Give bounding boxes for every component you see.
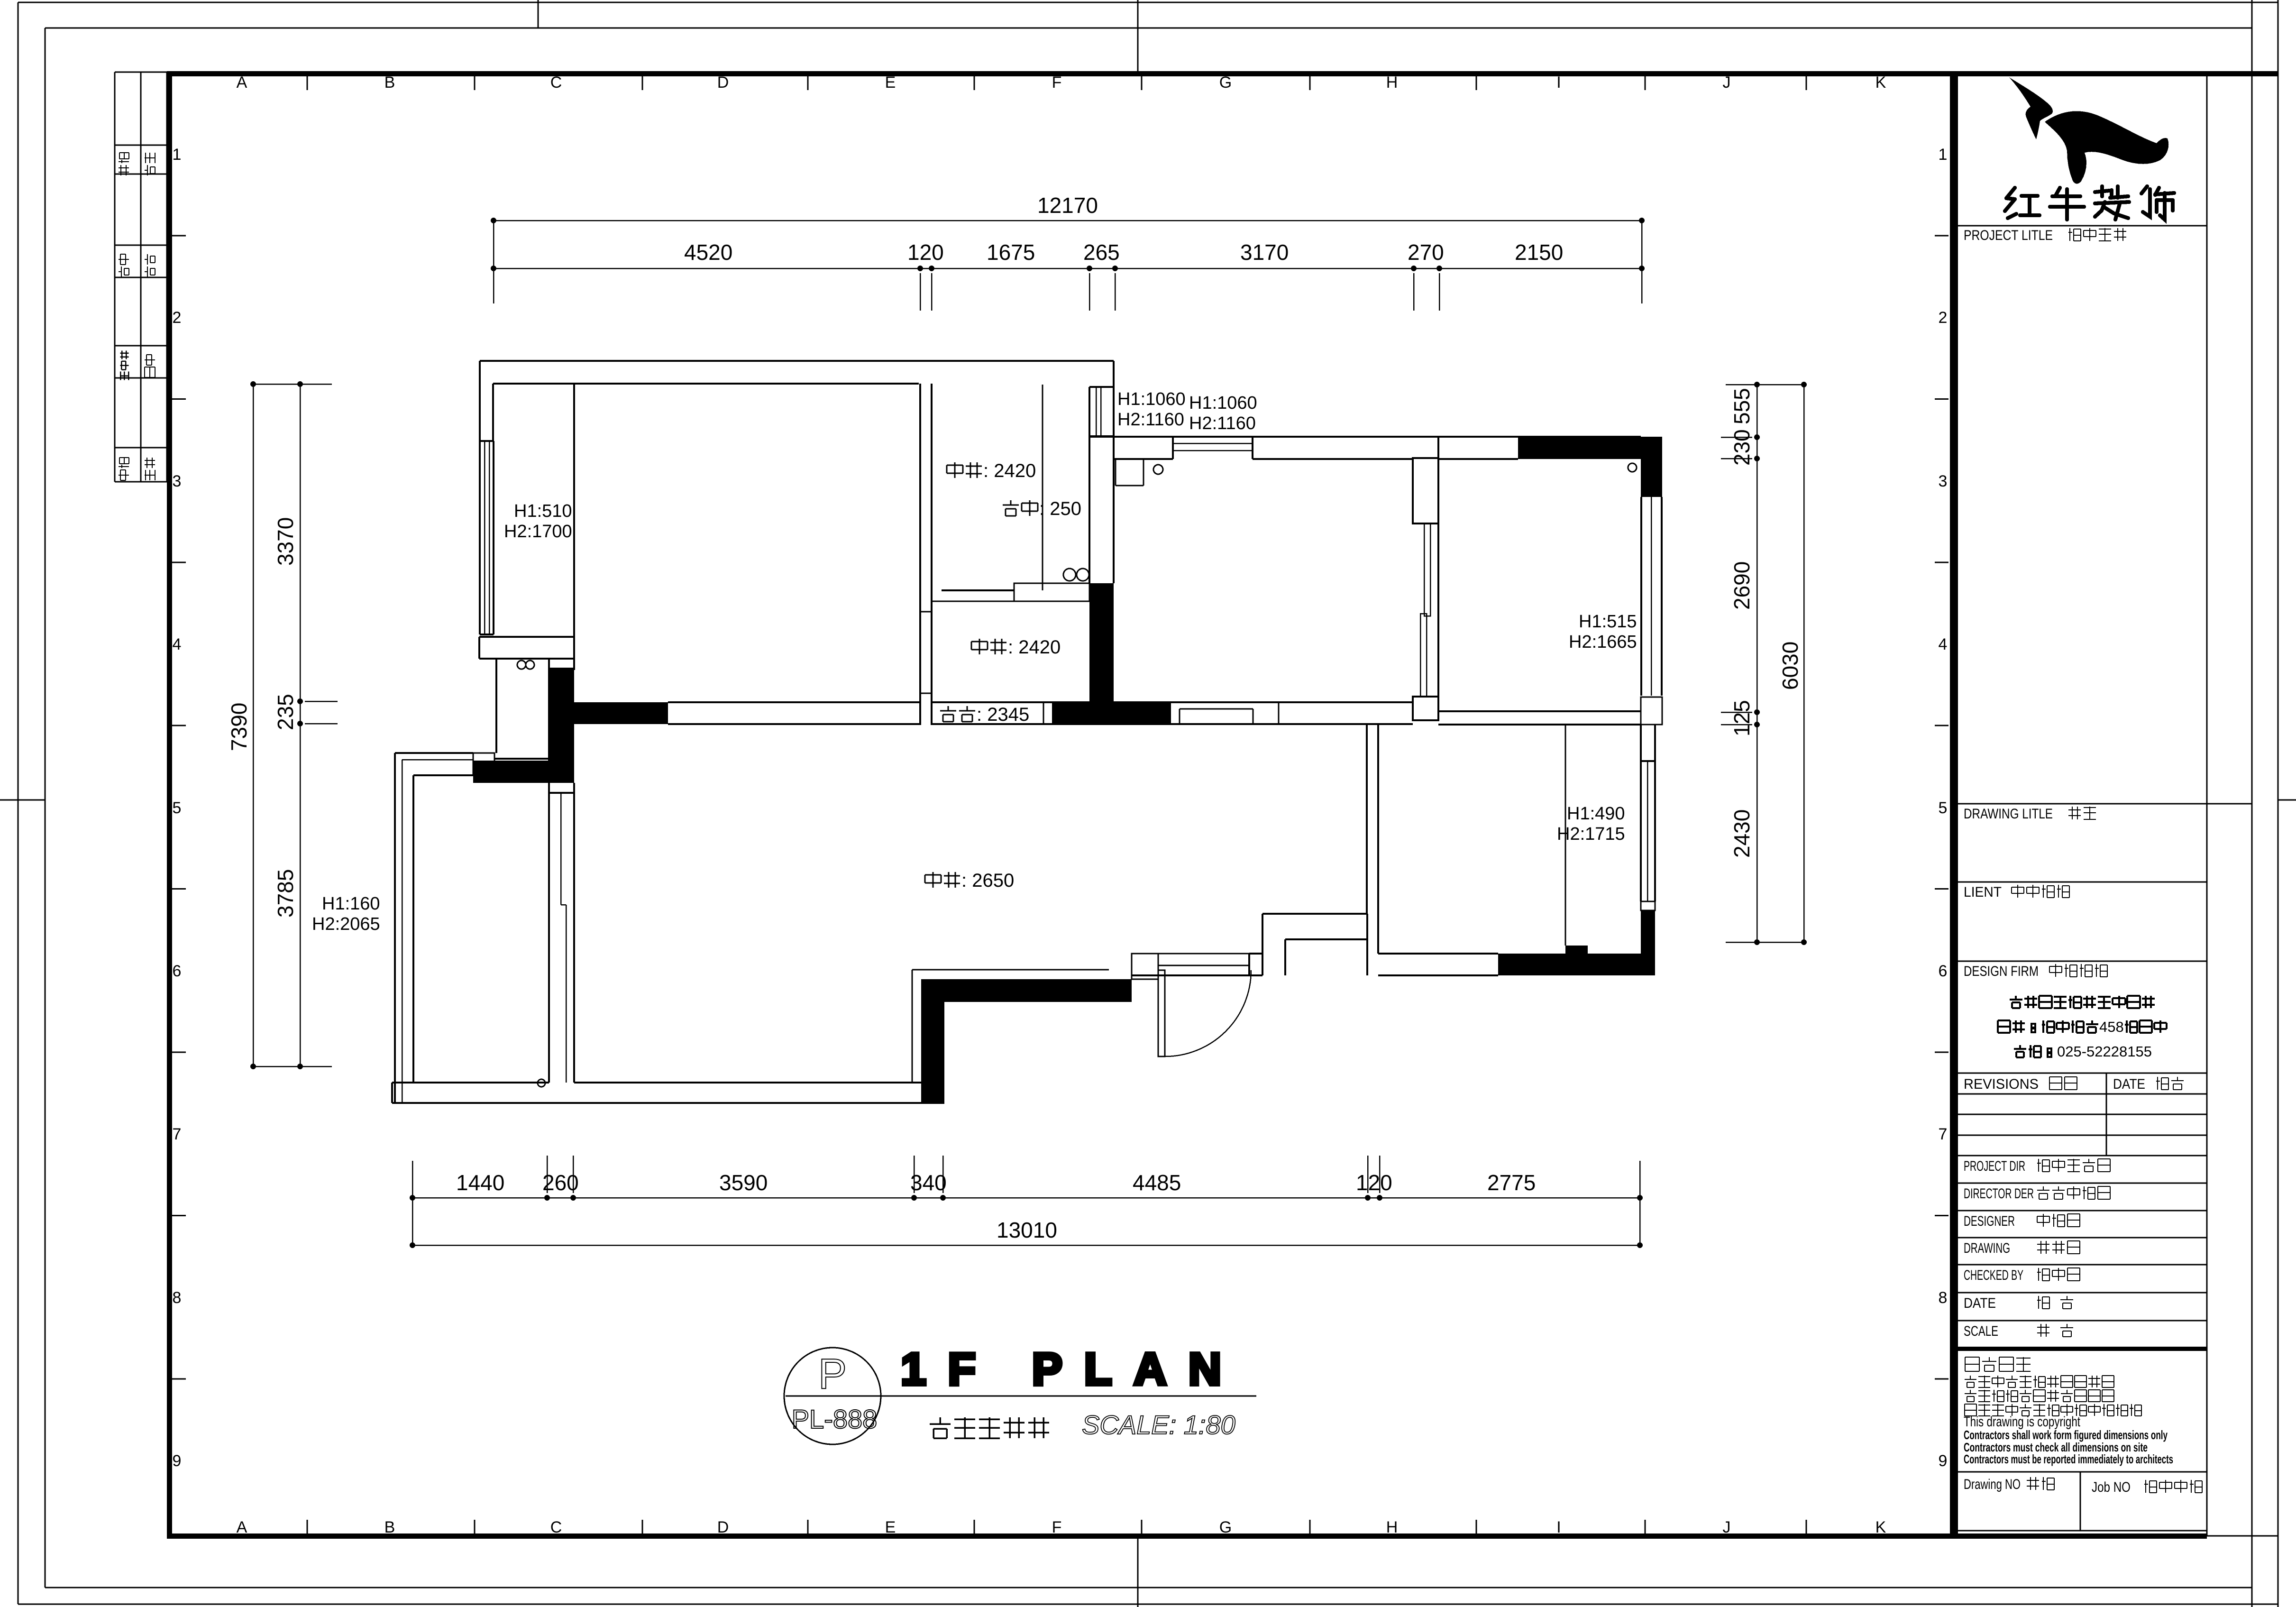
svg-text:Drawing NO: Drawing NO — [1964, 1477, 2021, 1492]
svg-text:340: 340 — [910, 1170, 947, 1195]
svg-text:DRAWING: DRAWING — [1964, 1240, 2010, 1256]
svg-text:120: 120 — [1356, 1170, 1392, 1195]
svg-text:4: 4 — [173, 635, 182, 653]
svg-text:LIENT: LIENT — [1964, 884, 2002, 900]
svg-text:: 250: : 250 — [1039, 498, 1081, 519]
svg-text:CHECKED BY: CHECKED BY — [1964, 1267, 2023, 1283]
svg-text:SCALE: 1:80: SCALE: 1:80 — [1082, 1410, 1235, 1440]
svg-text:A: A — [237, 1518, 247, 1536]
svg-text:555: 555 — [1729, 388, 1754, 424]
svg-text:I: I — [1556, 1518, 1561, 1536]
svg-text:D: D — [717, 73, 729, 92]
svg-text:7: 7 — [173, 1125, 182, 1143]
svg-text:H1:515: H1:515 — [1579, 612, 1637, 632]
svg-text:1F PLAN: 1F PLAN — [901, 1344, 1243, 1395]
svg-text:4485: 4485 — [1133, 1170, 1181, 1195]
svg-text:H: H — [1386, 73, 1398, 92]
svg-text:DESIGNER: DESIGNER — [1964, 1213, 2015, 1229]
svg-text:F: F — [1052, 1518, 1062, 1536]
svg-text:3: 3 — [1939, 472, 1948, 490]
svg-text:8: 8 — [173, 1289, 182, 1307]
svg-text:D: D — [717, 1518, 729, 1536]
svg-text:E: E — [885, 73, 896, 92]
svg-text:2430: 2430 — [1729, 809, 1754, 858]
svg-text:120: 120 — [907, 240, 944, 265]
svg-text:4520: 4520 — [684, 240, 732, 265]
svg-text:J: J — [1723, 73, 1731, 92]
svg-text:2690: 2690 — [1729, 561, 1754, 610]
svg-text:H1:160: H1:160 — [322, 894, 380, 914]
svg-text:12170: 12170 — [1037, 193, 1098, 218]
svg-text:025-52228155: 025-52228155 — [2057, 1043, 2152, 1060]
svg-text:: 2420: : 2420 — [1008, 637, 1061, 658]
svg-text:PROJECT LITLE: PROJECT LITLE — [1964, 228, 2053, 243]
svg-text:H2:1160: H2:1160 — [1189, 413, 1256, 433]
svg-text:1675: 1675 — [987, 240, 1035, 265]
svg-text:C: C — [550, 1518, 562, 1536]
svg-text:3: 3 — [173, 472, 182, 490]
svg-text:235: 235 — [273, 694, 298, 730]
svg-text:9: 9 — [173, 1452, 182, 1470]
svg-text:1440: 1440 — [456, 1170, 504, 1195]
svg-text:H1:1060: H1:1060 — [1189, 393, 1257, 413]
svg-text:H2:1700: H2:1700 — [504, 522, 572, 542]
svg-text:Contractors must be reported i: Contractors must be reported immediately… — [1964, 1452, 2173, 1466]
svg-text:6: 6 — [173, 962, 182, 980]
svg-text:A: A — [237, 73, 247, 92]
svg-text:265: 265 — [1083, 240, 1120, 265]
svg-text:G: G — [1219, 73, 1232, 92]
svg-text:7: 7 — [1939, 1125, 1948, 1143]
svg-text:3590: 3590 — [719, 1170, 768, 1195]
svg-text:H2:1715: H2:1715 — [1557, 824, 1625, 844]
svg-text:H1:490: H1:490 — [1567, 804, 1625, 824]
svg-text:2: 2 — [1939, 309, 1948, 327]
svg-text:G: G — [1219, 1518, 1232, 1536]
svg-text:230: 230 — [1729, 429, 1754, 466]
svg-text:7390: 7390 — [227, 703, 251, 751]
svg-text:6030: 6030 — [1778, 642, 1802, 690]
svg-text:1: 1 — [1939, 146, 1948, 164]
svg-text:F: F — [1052, 73, 1062, 92]
svg-text:SCALE: SCALE — [1964, 1323, 1998, 1339]
svg-text:H2:1665: H2:1665 — [1569, 632, 1637, 652]
svg-text:260: 260 — [542, 1170, 579, 1195]
svg-text:H1:510: H1:510 — [514, 501, 572, 521]
svg-text:K: K — [1875, 1518, 1886, 1536]
svg-text:5: 5 — [1939, 799, 1948, 817]
svg-text:P: P — [818, 1350, 847, 1398]
svg-text:2150: 2150 — [1515, 240, 1563, 265]
svg-text:DRAWING LITLE: DRAWING LITLE — [1964, 806, 2053, 822]
svg-text:458: 458 — [2099, 1019, 2124, 1035]
svg-text:DATE: DATE — [1964, 1295, 1996, 1311]
svg-text:DIRECTOR DER: DIRECTOR DER — [1964, 1186, 2034, 1202]
svg-text:E: E — [885, 1518, 896, 1536]
svg-text:H1:1060: H1:1060 — [1117, 389, 1186, 409]
svg-text:H2:1160: H2:1160 — [1117, 410, 1184, 430]
svg-text:DATE: DATE — [2113, 1076, 2145, 1092]
svg-text:9: 9 — [1939, 1452, 1948, 1470]
svg-text:H: H — [1386, 1518, 1398, 1536]
svg-text:: 2650: : 2650 — [961, 870, 1014, 891]
svg-text:H2:2065: H2:2065 — [312, 914, 380, 934]
svg-text:K: K — [1875, 73, 1886, 92]
svg-text:13010: 13010 — [997, 1218, 1057, 1242]
svg-text:PROJECT DIR: PROJECT DIR — [1964, 1158, 2025, 1174]
svg-text:3785: 3785 — [273, 869, 298, 918]
svg-text:4: 4 — [1939, 635, 1948, 653]
svg-text:PL-888: PL-888 — [792, 1404, 878, 1434]
svg-text:6: 6 — [1939, 962, 1948, 980]
svg-text:: 2345: : 2345 — [977, 704, 1029, 725]
svg-text:3170: 3170 — [1240, 240, 1289, 265]
svg-text:270: 270 — [1408, 240, 1444, 265]
svg-text:8: 8 — [1939, 1289, 1948, 1307]
svg-text:REVISIONS: REVISIONS — [1964, 1076, 2039, 1092]
svg-text:3370: 3370 — [273, 517, 298, 566]
svg-text:I: I — [1556, 73, 1561, 92]
svg-text:: 2420: : 2420 — [983, 460, 1036, 481]
svg-text:B: B — [384, 1518, 395, 1536]
svg-text:125: 125 — [1729, 700, 1754, 736]
svg-text:1: 1 — [173, 146, 182, 164]
svg-text:2: 2 — [173, 309, 182, 327]
svg-text:2775: 2775 — [1487, 1170, 1536, 1195]
svg-text:Job NO: Job NO — [2092, 1479, 2131, 1495]
svg-text:C: C — [550, 73, 562, 92]
svg-text:J: J — [1723, 1518, 1731, 1536]
svg-text:B: B — [384, 73, 395, 92]
svg-text:5: 5 — [173, 799, 182, 817]
svg-text:DESIGN FIRM: DESIGN FIRM — [1964, 964, 2039, 979]
